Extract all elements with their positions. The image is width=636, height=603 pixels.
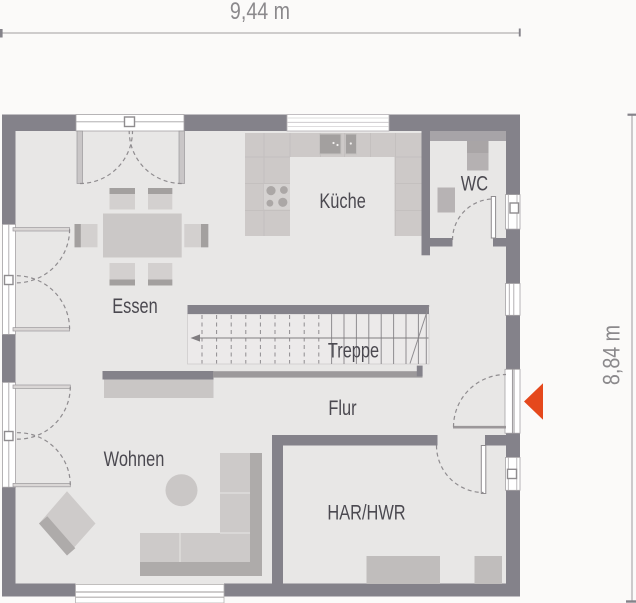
svg-text:Wohnen: Wohnen: [104, 447, 165, 470]
svg-text:Küche: Küche: [319, 189, 365, 212]
svg-text:Flur: Flur: [328, 396, 356, 419]
svg-text:8,84 m: 8,84 m: [598, 325, 625, 385]
svg-text:WC: WC: [461, 172, 488, 195]
svg-text:HAR/HWR: HAR/HWR: [327, 501, 405, 524]
svg-text:Treppe: Treppe: [328, 339, 379, 362]
svg-text:9,44 m: 9,44 m: [230, 0, 290, 24]
svg-text:Essen: Essen: [112, 294, 158, 317]
